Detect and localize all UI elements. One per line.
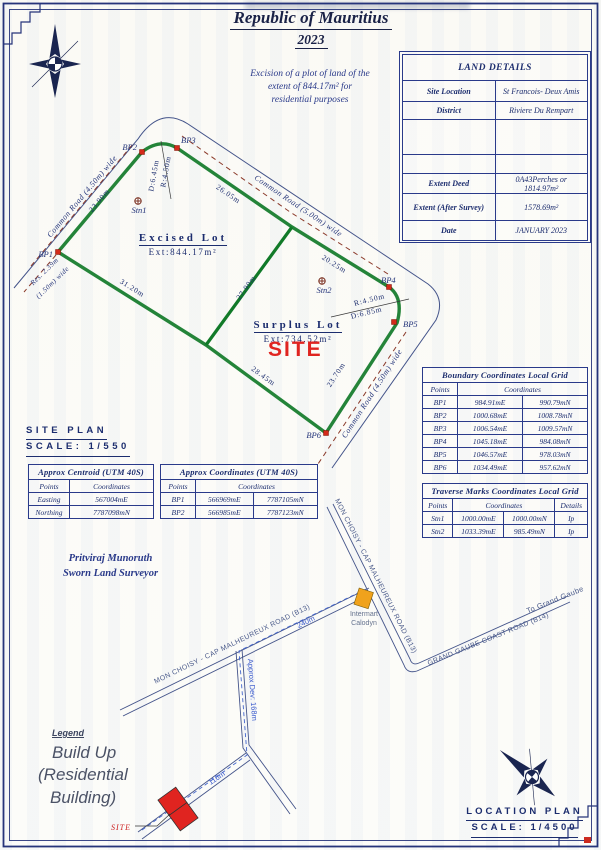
header: Republic of Mauritius 2023	[180, 8, 442, 49]
approx-row-e: 566969mE	[196, 493, 254, 506]
site-location-label: Site Location	[403, 81, 496, 102]
to-grand-gaube-label: To Grand Gaube	[525, 584, 585, 615]
bp2-label: BP2	[122, 142, 137, 152]
extent-survey-value: 1578.69m²	[495, 194, 588, 221]
site-plan-title: SITE PLAN	[26, 424, 107, 440]
dim-label: 27.90m	[234, 274, 257, 302]
col-points: Points	[161, 480, 196, 493]
approx-row-point: BP1	[161, 493, 196, 506]
legend-line: Build Up	[52, 742, 242, 764]
col-points: Points	[29, 480, 70, 493]
boundary-row-point: BP3	[423, 422, 458, 435]
empty-cell	[403, 120, 496, 155]
centroid-row-value: 567004mE	[70, 493, 154, 506]
road-label: Common Road (5.00m) wide	[253, 173, 344, 239]
boundary-title: Boundary Coordinates Local Grid	[423, 368, 588, 383]
site-plan-drawing: BP1 BP2 BP3 BP4 BP5 BP6 Stn1 Stn2 23.90m…	[14, 118, 440, 468]
bp5-label: BP5	[403, 319, 418, 329]
boundary-row-e: 1000.68mE	[458, 409, 523, 422]
boundary-row-e: 984.91mE	[458, 396, 523, 409]
bp3-label: BP3	[181, 135, 196, 145]
boundary-point-markers	[56, 146, 397, 436]
boundary-row-n: 990.79mN	[523, 396, 588, 409]
boundary-row-point: BP1	[423, 396, 458, 409]
plot-boundary	[58, 144, 399, 433]
surveyor-role: Sworn Land Surveyor	[63, 568, 158, 579]
corner-red-mark	[584, 837, 591, 843]
traverse-row-n: 1000.00mN	[504, 512, 555, 525]
road-b14-label: GRAND GAUBE COAST ROAD (B14)	[427, 612, 550, 667]
approx-coordinates-table: Approx Coordinates (UTM 40S) Points Coor…	[160, 464, 318, 519]
site-marker: SITE	[268, 338, 323, 362]
purpose-line: Excision of a plot of land of the	[250, 69, 370, 79]
boundary-row-n: 978.03mN	[523, 448, 588, 461]
legend-title: Legend	[52, 728, 242, 738]
centroid-row-label: Northing	[29, 506, 70, 519]
stn2-label: Stn2	[316, 285, 332, 295]
empty-cell	[495, 120, 588, 155]
reserved-road-label: (1.50m) wide	[34, 265, 70, 301]
traverse-row-point: Stn2	[423, 525, 453, 538]
intermart-line: Intermart	[350, 611, 378, 618]
boundary-row-point: BP5	[423, 448, 458, 461]
curve-radius-label: R:4.50m	[353, 291, 386, 307]
boundary-row-e: 1034.49mE	[458, 461, 523, 474]
intermart-line: Calodyn	[351, 620, 377, 627]
reserved-road-label: Res. 2.39m	[28, 256, 60, 287]
centroid-row-value: 7787098mN	[70, 506, 154, 519]
district-label: District	[403, 102, 496, 120]
traverse-row-e: 1033.39mE	[453, 525, 504, 538]
boundary-row-point: BP2	[423, 409, 458, 422]
purpose-line: extent of 844.17m² for	[268, 82, 352, 92]
dim-label: 23.70m	[325, 361, 348, 389]
bp1-label: BP1	[38, 249, 53, 259]
corner-steps-topleft	[3, 3, 40, 44]
approx-row-n: 7787123mN	[253, 506, 317, 519]
approx-row-n: 7787105mN	[253, 493, 317, 506]
traverse-row-n: 985.49mN	[504, 525, 555, 538]
site-plan-scale: SCALE: 1/550	[26, 440, 130, 456]
legend-line: Building)	[50, 787, 242, 809]
extent-deed-label: Extent Deed	[403, 174, 496, 194]
page-title: Republic of Mauritius	[230, 8, 393, 30]
empty-cell	[403, 155, 496, 174]
boundary-row-point: BP6	[423, 461, 458, 474]
centroid-title: Approx Centroid (UTM 40S)	[29, 465, 154, 480]
col-coordinates: Coordinates	[196, 480, 318, 493]
centroid-table: Approx Centroid (UTM 40S) Points Coordin…	[28, 464, 154, 519]
excised-lot-label: Excised Lot Ext:844.17m²	[130, 228, 236, 257]
curve-dev-label: D:6.85m	[350, 304, 383, 320]
dim-label: 26.05m	[214, 183, 242, 206]
excised-lot-name: Excised Lot	[139, 232, 227, 246]
dim-label: 31.20m	[118, 277, 146, 299]
dim-label: 28.45m	[250, 364, 278, 387]
boundary-row-e: 1045.18mE	[458, 435, 523, 448]
location-site-label: SITE	[111, 823, 131, 832]
date-value: JANUARY 2023	[495, 221, 588, 241]
boundary-row-point: BP4	[423, 435, 458, 448]
empty-cell	[495, 155, 588, 174]
road-label: Common Road (4.50m) wide	[340, 348, 404, 440]
bp4-label: BP4	[381, 275, 396, 285]
extent-deed-value: 0A43Perches or 1814.97m²	[495, 174, 588, 194]
col-points: Points	[423, 499, 453, 512]
excised-lot-extent: Ext:844.17m²	[130, 247, 236, 257]
boundary-coordinates-table: Boundary Coordinates Local Grid Points C…	[422, 367, 588, 474]
road-b13-steep-label: MON CHOISY - CAP MALHEUREUX ROAD (B13)	[333, 498, 418, 655]
date-label: Date	[403, 221, 496, 241]
surplus-lot-name: Surplus Lot	[254, 319, 343, 333]
page-year: 2023	[295, 32, 328, 49]
traverse-row-details: Ip	[555, 525, 588, 538]
site-plan-heading: SITE PLAN SCALE: 1/550	[26, 424, 130, 457]
legend-line: (Residential	[38, 764, 242, 786]
radius-line	[161, 141, 171, 199]
distance-240m: 240m	[295, 614, 316, 630]
boundary-row-n: 1008.78mN	[523, 409, 588, 422]
road-b13-label: MON CHOISY - CAP MALHEUREUX ROAD (B13)	[153, 604, 311, 686]
boundary-row-e: 1046.57mE	[458, 448, 523, 461]
dim-label: 20.25m	[320, 253, 348, 275]
land-details-table: LAND DETAILS Site Location St Francois- …	[402, 54, 588, 241]
road-outer-line	[14, 118, 440, 468]
curve-radius-label: R:4.50m	[158, 155, 172, 188]
site-location-value: St Francois- Deux Amis	[495, 81, 588, 102]
traverse-title: Traverse Marks Coordinates Local Grid	[423, 484, 588, 499]
col-points: Points	[423, 383, 458, 396]
col-coordinates: Coordinates	[453, 499, 555, 512]
compass-rose-icon	[484, 732, 570, 815]
traverse-row-point: Stn1	[423, 512, 453, 525]
col-coordinates: Coordinates	[458, 383, 588, 396]
extent-survey-label: Extent (After Survey)	[403, 194, 496, 221]
traverse-row-e: 1000.00mE	[453, 512, 504, 525]
land-details-title: LAND DETAILS	[403, 55, 588, 81]
land-details-box: LAND DETAILS Site Location St Francois- …	[399, 51, 591, 243]
traverse-marks-table: Traverse Marks Coordinates Local Grid Po…	[422, 483, 588, 538]
district-value: Riviere Du Rempart	[495, 102, 588, 120]
location-plan-heading: LOCATION PLAN SCALE: 1/4500	[462, 805, 587, 838]
survey-sheet: Republic of Mauritius 2023 Excision of a…	[0, 0, 601, 850]
boundary-row-e: 1006.54mE	[458, 422, 523, 435]
road-dashed-edges	[24, 136, 406, 464]
traverse-row-details: Ip	[555, 512, 588, 525]
approx-row-e: 566985mE	[196, 506, 254, 519]
intermart-building	[354, 588, 374, 609]
boundary-row-n: 1009.57mN	[523, 422, 588, 435]
stn1-label: Stn1	[131, 205, 146, 215]
bp6-label: BP6	[306, 430, 321, 440]
surveyor-name: Pritviraj Munoruth	[69, 553, 153, 564]
purpose-note: Excision of a plot of land of the extent…	[225, 68, 395, 106]
boundary-row-n: 957.62mN	[523, 461, 588, 474]
col-coordinates: Coordinates	[70, 480, 154, 493]
boundary-row-n: 984.08mN	[523, 435, 588, 448]
approx-title: Approx Coordinates (UTM 40S)	[161, 465, 318, 480]
location-plan-title: LOCATION PLAN	[466, 805, 582, 821]
legend-block: Legend Build Up (Residential Building)	[52, 728, 242, 809]
surveyor-block: Pritviraj Munoruth Sworn Land Surveyor	[38, 552, 183, 581]
intermart-label: Intermart Calodyn	[334, 610, 394, 628]
approx-row-point: BP2	[161, 506, 196, 519]
site-leader-line	[135, 814, 170, 826]
location-plan-scale: SCALE: 1/4500	[471, 821, 577, 837]
distance-168m: Approx Dev: 168m	[246, 659, 259, 722]
dim-label: 23.90m	[87, 187, 112, 214]
purpose-line: residential purposes	[272, 95, 349, 105]
curve-dev-label: D:6.45m	[146, 159, 160, 192]
compass-rose-icon	[29, 24, 81, 98]
road-label: Common Road (4.50m) wide	[45, 154, 119, 239]
centroid-row-label: Easting	[29, 493, 70, 506]
col-details: Details	[555, 499, 588, 512]
